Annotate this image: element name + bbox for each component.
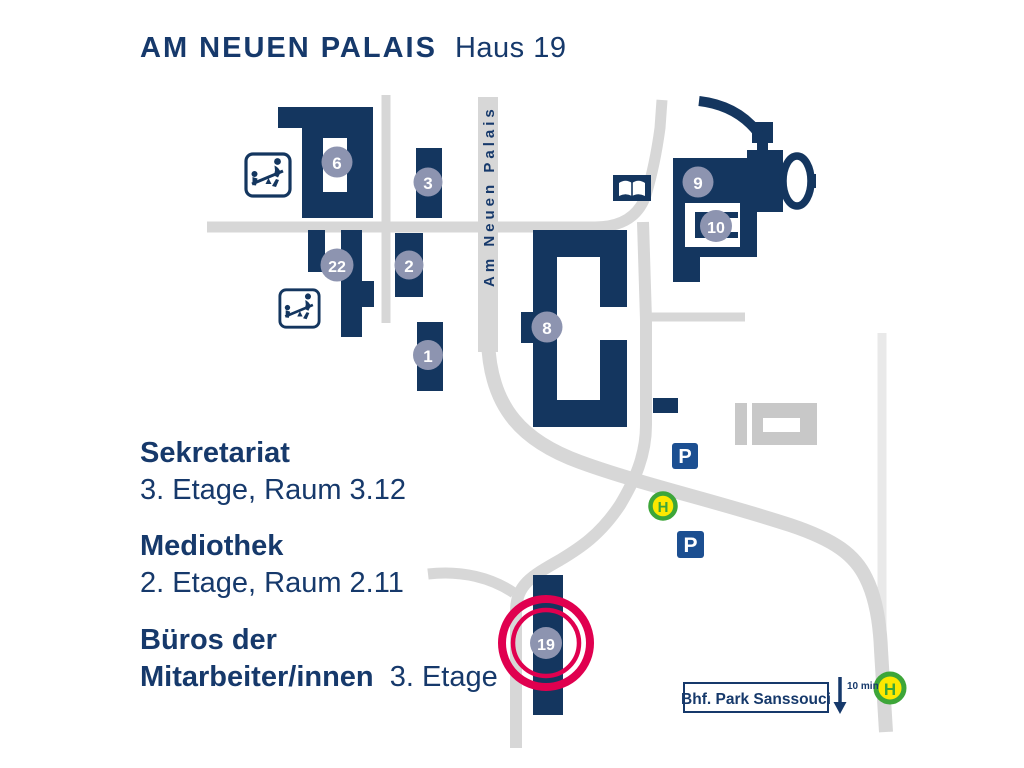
street-label: Am Neuen Palais <box>481 105 498 287</box>
parking-letter: P <box>678 446 691 468</box>
info-bueros-title2: Mitarbeiter/innen <box>140 661 374 693</box>
building-annex-small <box>653 398 678 413</box>
info-sekretariat-title: Sekretariat <box>140 437 290 469</box>
parking-icon: P <box>672 443 698 469</box>
badge-label: 8 <box>542 319 551 338</box>
building-22-wing <box>362 281 374 307</box>
building-9-neck <box>757 143 768 152</box>
playground-icon <box>280 290 319 327</box>
building-9-east-arm <box>747 150 783 212</box>
parking-icon: P <box>677 531 704 558</box>
gray-building-strip <box>735 403 747 445</box>
road-west-spur <box>428 573 514 593</box>
book-icon <box>613 175 651 201</box>
info-bueros-line2: Mitarbeiter/innen 3. Etage <box>140 661 498 693</box>
badge-3: 3 <box>414 168 443 197</box>
station-label: Bhf. Park Sanssouci <box>681 691 831 708</box>
info-bueros-title: Büros der <box>140 624 277 656</box>
info-sekretariat-detail: 3. Etage, Raum 3.12 <box>140 474 406 506</box>
badge-6: 6 <box>322 147 353 178</box>
campus-map-svg: P P H H 6 3 22 2 1 <box>0 0 1024 768</box>
badge-19: 19 <box>530 627 562 659</box>
parking-letter: P <box>683 534 697 557</box>
building-9-colonnade-ring <box>783 156 811 206</box>
badge-label: 9 <box>693 174 702 193</box>
page-title: AM NEUEN PALAIS Haus 19 <box>140 32 567 64</box>
info-block: Sekretariat 3. Etage, Raum 3.12 Mediothe… <box>140 437 498 693</box>
walk-time-label: 10 min <box>847 681 879 692</box>
badge-label: 1 <box>423 347 432 366</box>
building-9-arc-wing <box>699 101 759 134</box>
badge-label: 10 <box>707 220 725 237</box>
bus-stop-icon: H <box>651 494 676 519</box>
badge-2: 2 <box>395 251 424 280</box>
badge-label: 22 <box>328 259 346 276</box>
gray-buildings <box>735 403 817 445</box>
building-8-west-stub <box>521 312 533 343</box>
badge-label: 3 <box>423 174 432 193</box>
building-22-main <box>341 230 362 337</box>
campus-map-page: P P H H 6 3 22 2 1 <box>0 0 1024 768</box>
building-9-east-stub <box>809 174 816 188</box>
badge-label: 19 <box>537 637 555 654</box>
badge-label: 6 <box>332 154 341 173</box>
info-bueros-detail: 3. Etage <box>390 661 498 693</box>
station-signpost: Bhf. Park Sanssouci 10 min <box>681 677 879 714</box>
bus-stop-icon: H <box>876 674 904 702</box>
info-mediothek-detail: 2. Etage, Raum 2.11 <box>140 567 404 599</box>
building-9-south-leg <box>673 257 700 282</box>
badge-10: 10 <box>700 210 732 242</box>
badge-9: 9 <box>683 167 714 198</box>
badge-8: 8 <box>532 312 563 343</box>
page-title-campus: AM NEUEN PALAIS <box>140 32 437 64</box>
badge-1: 1 <box>413 340 443 370</box>
badge-22: 22 <box>321 249 354 282</box>
page-title-house: Haus 19 <box>455 32 567 64</box>
badge-label: 2 <box>404 257 413 276</box>
gray-building-courtyard <box>763 418 800 432</box>
walk-direction-arrow-icon <box>834 677 847 714</box>
info-mediothek-title: Mediothek <box>140 530 284 562</box>
bus-stop-letter: H <box>658 499 669 516</box>
bus-stop-letter: H <box>884 680 896 699</box>
playground-icon <box>246 154 290 196</box>
